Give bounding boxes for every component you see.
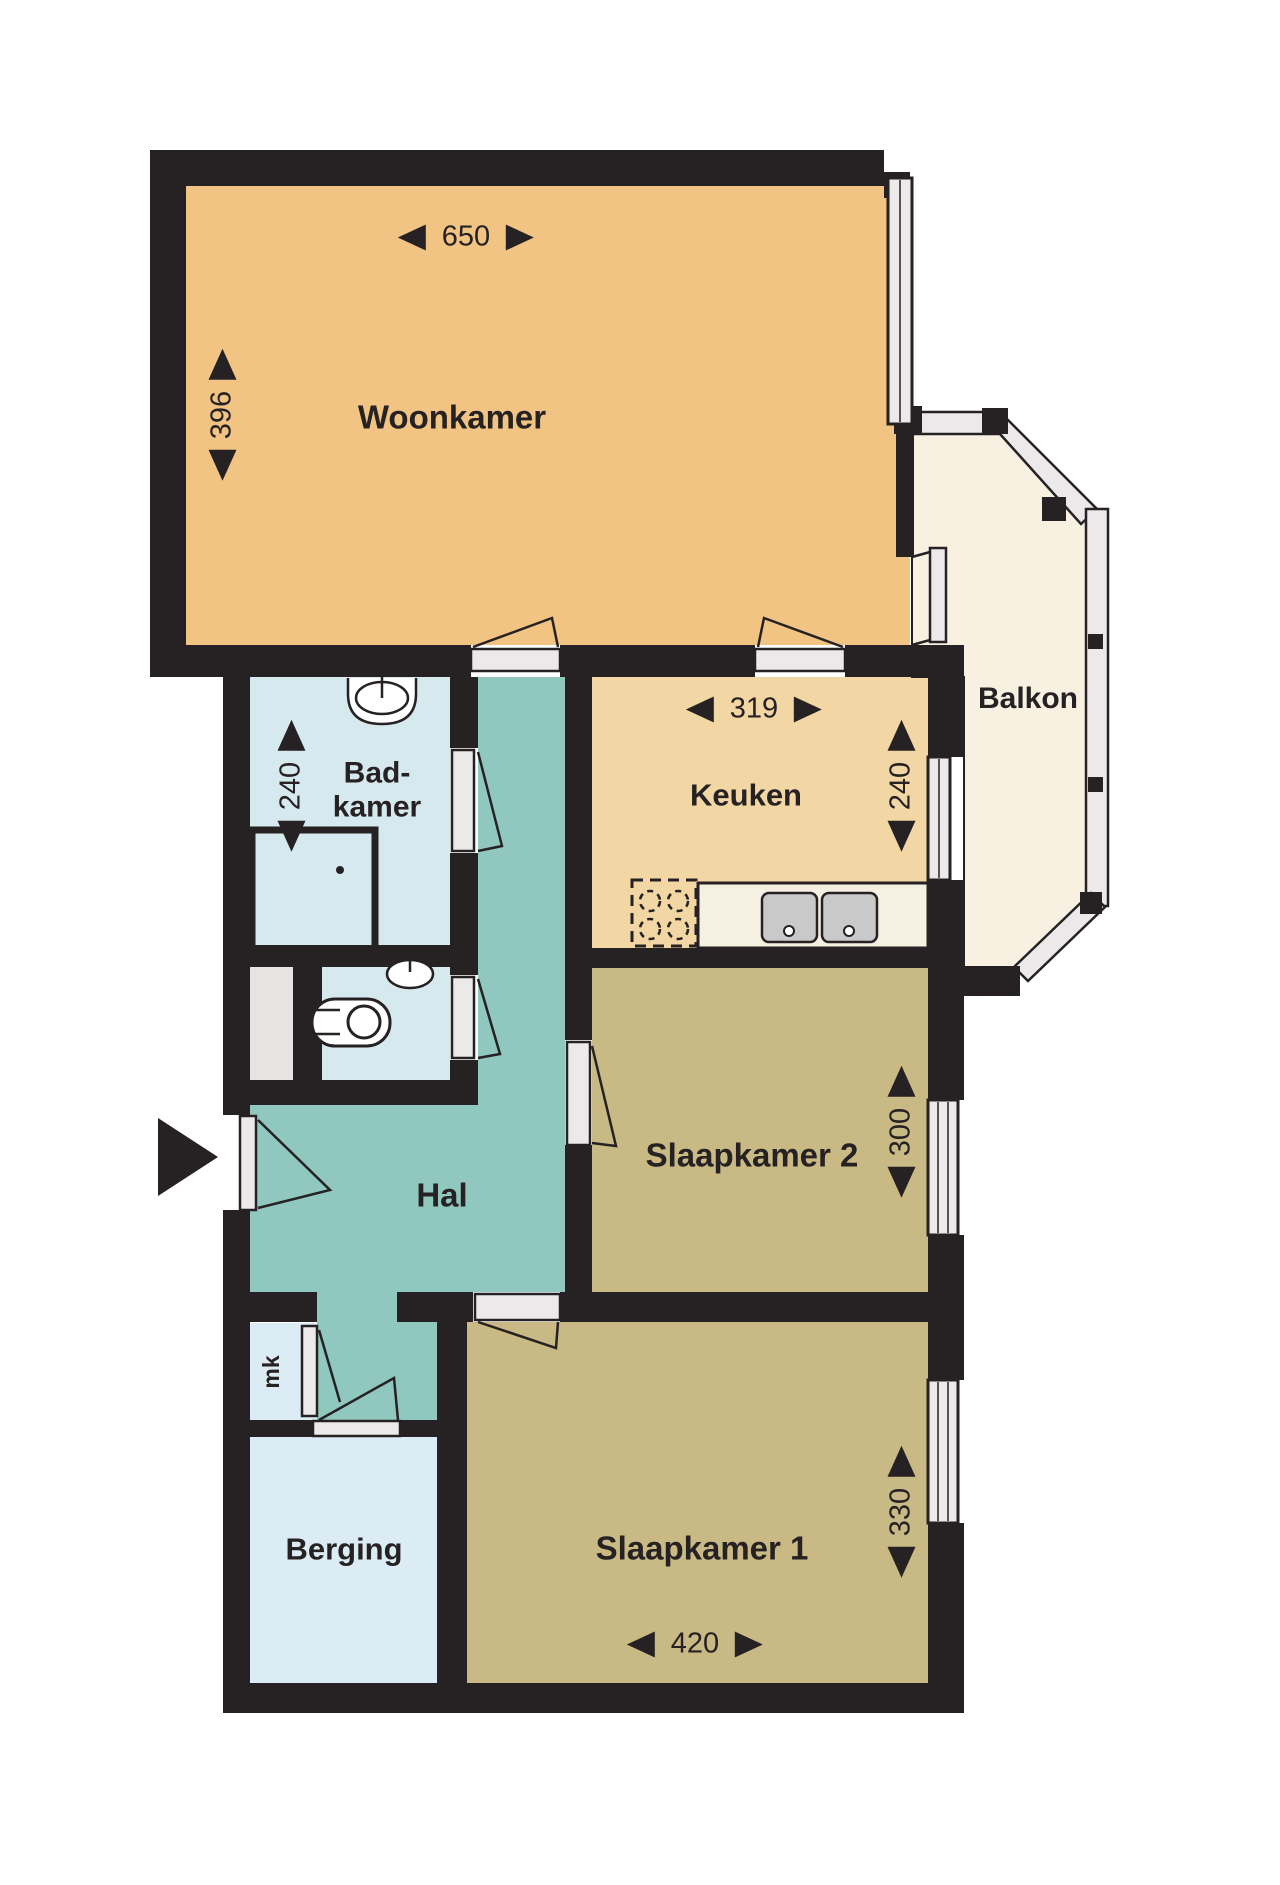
wall-keuken-hal (565, 677, 592, 948)
wall-right-2 (928, 880, 964, 1100)
wall-badkamer-right-1 (450, 677, 478, 748)
toilet (312, 999, 390, 1046)
arrow-right-icon (794, 696, 822, 722)
wall-berging-top-1 (223, 1420, 313, 1437)
wall-bottom (223, 1683, 964, 1713)
wall-left-lower-2 (223, 1210, 250, 1713)
arrow-up-icon (887, 720, 915, 751)
keuken-width-value: 319 (730, 693, 778, 726)
meterkast-label: mk (259, 1355, 285, 1388)
wall-slaapkamer2-left-1 (565, 968, 592, 1040)
balkon-label: Balkon (978, 682, 1078, 716)
hal-label: Hal (416, 1178, 467, 1215)
keuken-label: Keuken (690, 779, 802, 814)
woonkamer-width-dimension: 650 (398, 221, 534, 254)
keuken-depth-dimension: 240 (885, 720, 918, 852)
slaapkamer2-label: Slaapkamer 2 (646, 1138, 859, 1175)
wall-left-upper (150, 150, 186, 677)
arrow-up-icon (208, 349, 236, 380)
wall-top (150, 150, 884, 186)
slaapkamer1-window (928, 1380, 958, 1523)
badkamer-label: Bad- kamer (333, 756, 421, 823)
arrow-up-icon (887, 1446, 915, 1477)
floor-plan: Woonkamer Keuken Bad- kamer Balkon Hal S… (0, 0, 1280, 1885)
room-slaapkamer2-floor (592, 968, 928, 1292)
arrow-down-icon (887, 821, 915, 852)
duct-shaft (250, 967, 293, 1080)
wall-slaapkamer1-top-1 (397, 1292, 473, 1322)
slaapkamer2-depth-dimension: 300 (885, 1066, 918, 1198)
slaapkamer1-width-value: 420 (671, 1628, 719, 1661)
wall-woonkamer-right (896, 422, 914, 557)
woonkamer-label: Woonkamer (358, 400, 546, 437)
wall-right-4 (928, 1523, 964, 1683)
wall-woonkamer-bottom-1 (150, 645, 471, 677)
badkamer-label-line1: Bad- (333, 756, 421, 790)
balkon-railing-right (1086, 509, 1108, 906)
arrow-left-icon (627, 1631, 655, 1657)
arrow-down-icon (277, 821, 305, 852)
wall-left-lower-1 (223, 677, 250, 1115)
arrow-up-icon (887, 1066, 915, 1097)
badkamer-depth-value: 240 (275, 762, 308, 810)
arrow-right-icon (506, 224, 534, 250)
wall-meterkast-top (223, 1292, 317, 1322)
arrow-left-icon (686, 696, 714, 722)
wall-berging-slaapkamer1 (437, 1322, 467, 1683)
wall-woonkamer-bottom-2 (560, 645, 755, 677)
arrow-right-icon (735, 1631, 763, 1657)
badkamer-label-line2: kamer (333, 790, 421, 824)
slaapkamer1-depth-dimension: 330 (885, 1446, 918, 1578)
wall-keuken-bottom (565, 948, 964, 968)
arrow-down-icon (887, 1167, 915, 1198)
room-woonkamer-floor (186, 186, 910, 645)
arrow-down-icon (887, 1547, 915, 1578)
slaapkamer1-width-dimension: 420 (627, 1628, 763, 1661)
entrance-arrow-icon (158, 1118, 218, 1196)
woonkamer-depth-value: 396 (206, 391, 239, 439)
wall-berging-top-2 (400, 1420, 437, 1437)
wall-wc-bottom (250, 1080, 478, 1105)
keuken-width-dimension: 319 (686, 693, 822, 726)
wall-slaapkamer1-top-2 (560, 1292, 964, 1322)
arrow-up-icon (277, 720, 305, 751)
wall-right-1 (928, 645, 964, 757)
slaapkamer1-depth-value: 330 (885, 1488, 918, 1536)
balkon-wall-stub (962, 966, 1020, 996)
slaapkamer2-depth-value: 300 (885, 1108, 918, 1156)
berging-label: Berging (285, 1533, 402, 1568)
badkamer-depth-dimension: 240 (275, 720, 308, 852)
slaapkamer1-label: Slaapkamer 1 (596, 1531, 809, 1568)
kitchen-counter (698, 883, 928, 948)
woonkamer-depth-dimension: 396 (206, 349, 239, 481)
floor-plan-drawing (0, 0, 1280, 1885)
arrow-left-icon (398, 224, 426, 250)
arrow-down-icon (208, 450, 236, 481)
keuken-depth-value: 240 (885, 762, 918, 810)
slaapkamer2-window (928, 1100, 958, 1235)
woonkamer-width-value: 650 (442, 221, 490, 254)
room-hal-corridor-floor (478, 677, 565, 1107)
